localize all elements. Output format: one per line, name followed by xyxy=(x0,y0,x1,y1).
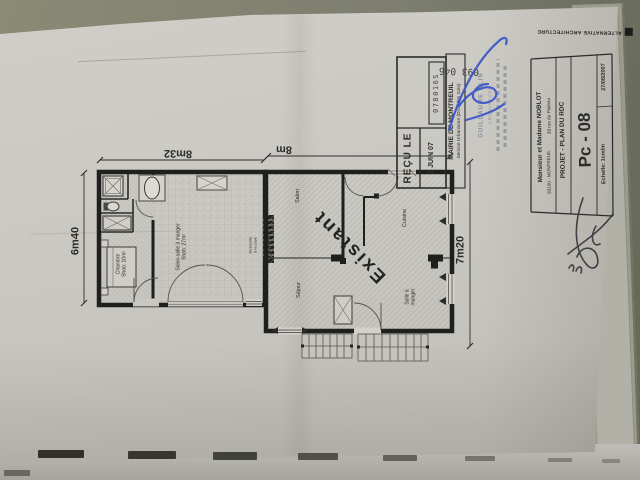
signatures-layer xyxy=(0,0,640,480)
photographed-floor-plan-document: 8m32 8m 6m40 7m20 Chambre Shab: 10m² Sal… xyxy=(0,0,640,480)
dark-signature xyxy=(568,198,613,273)
blue-signature xyxy=(449,38,507,130)
